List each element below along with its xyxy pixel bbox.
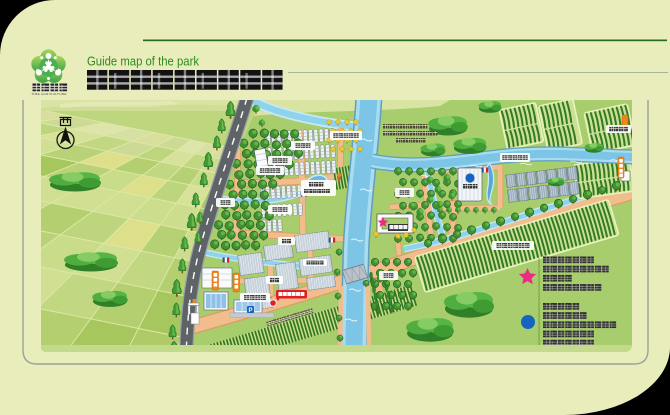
svg-text:P: P [248,308,252,314]
svg-text:TIME AGRICULTURE: TIME AGRICULTURE [31,92,67,96]
svg-text:Guide map of the park: Guide map of the park [87,55,200,69]
